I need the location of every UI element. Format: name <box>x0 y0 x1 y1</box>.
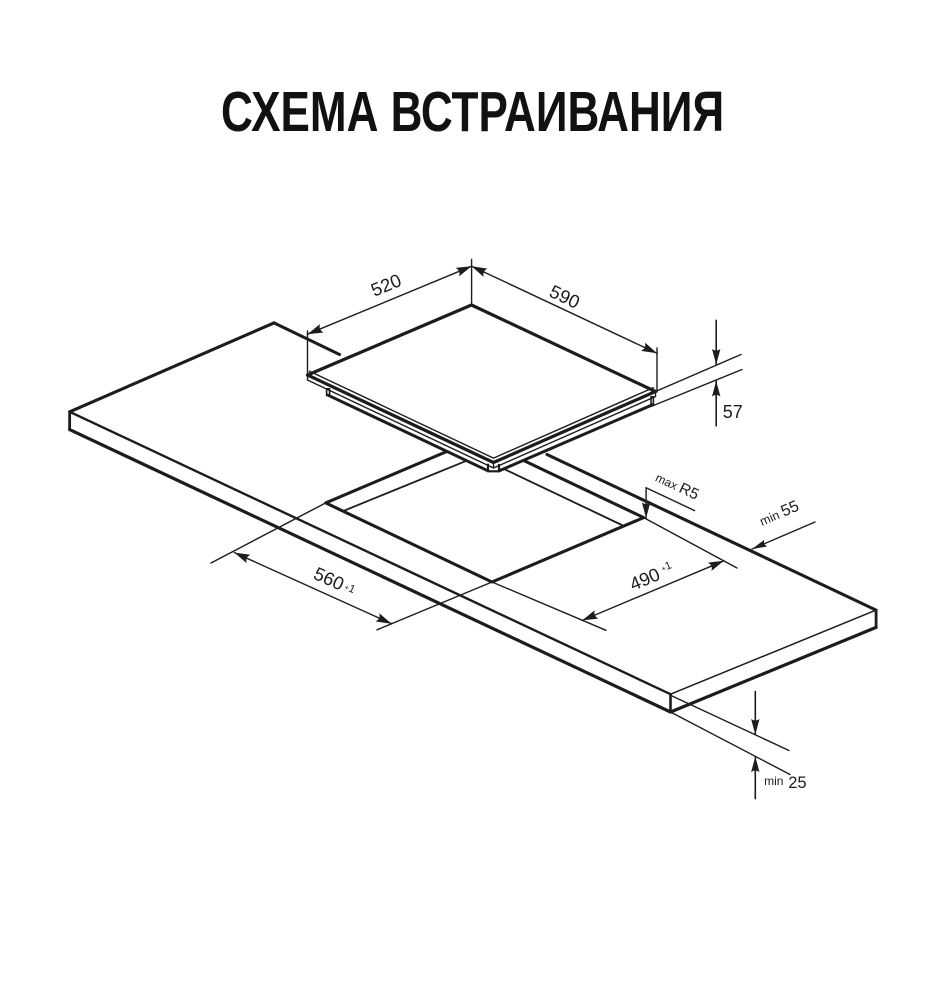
svg-text:57: 57 <box>723 402 743 422</box>
svg-text:min: min <box>764 774 783 788</box>
svg-text:min 55: min 55 <box>757 498 802 530</box>
svg-text:25: 25 <box>788 774 806 792</box>
svg-text:590: 590 <box>546 281 583 313</box>
svg-text:max R5: max R5 <box>653 469 702 504</box>
svg-text:+1: +1 <box>342 581 357 596</box>
